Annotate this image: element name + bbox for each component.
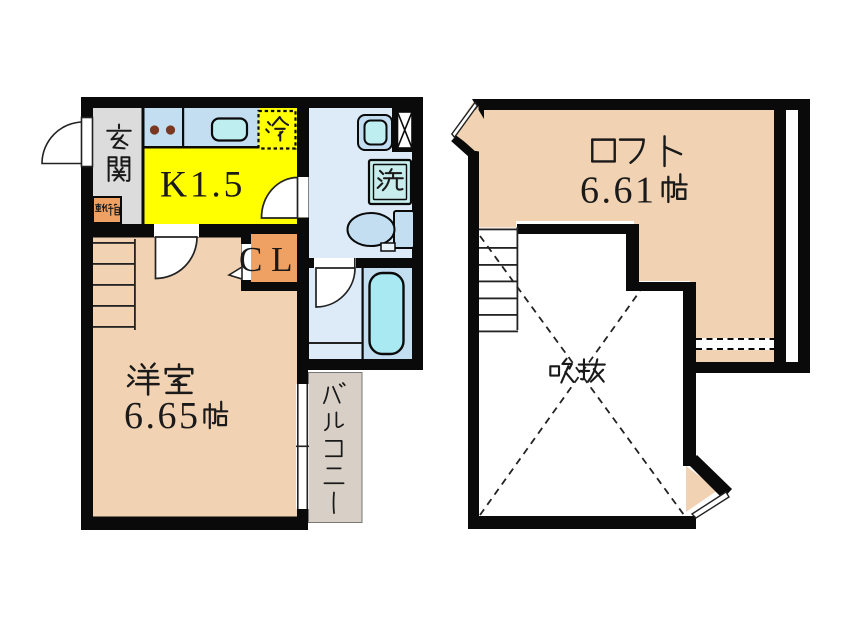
svg-text:6.65: 6.65 bbox=[124, 395, 201, 437]
svg-text:6.61: 6.61 bbox=[580, 170, 657, 212]
svg-text:C L: C L bbox=[239, 240, 292, 279]
svg-text:K1.5: K1.5 bbox=[160, 165, 245, 206]
